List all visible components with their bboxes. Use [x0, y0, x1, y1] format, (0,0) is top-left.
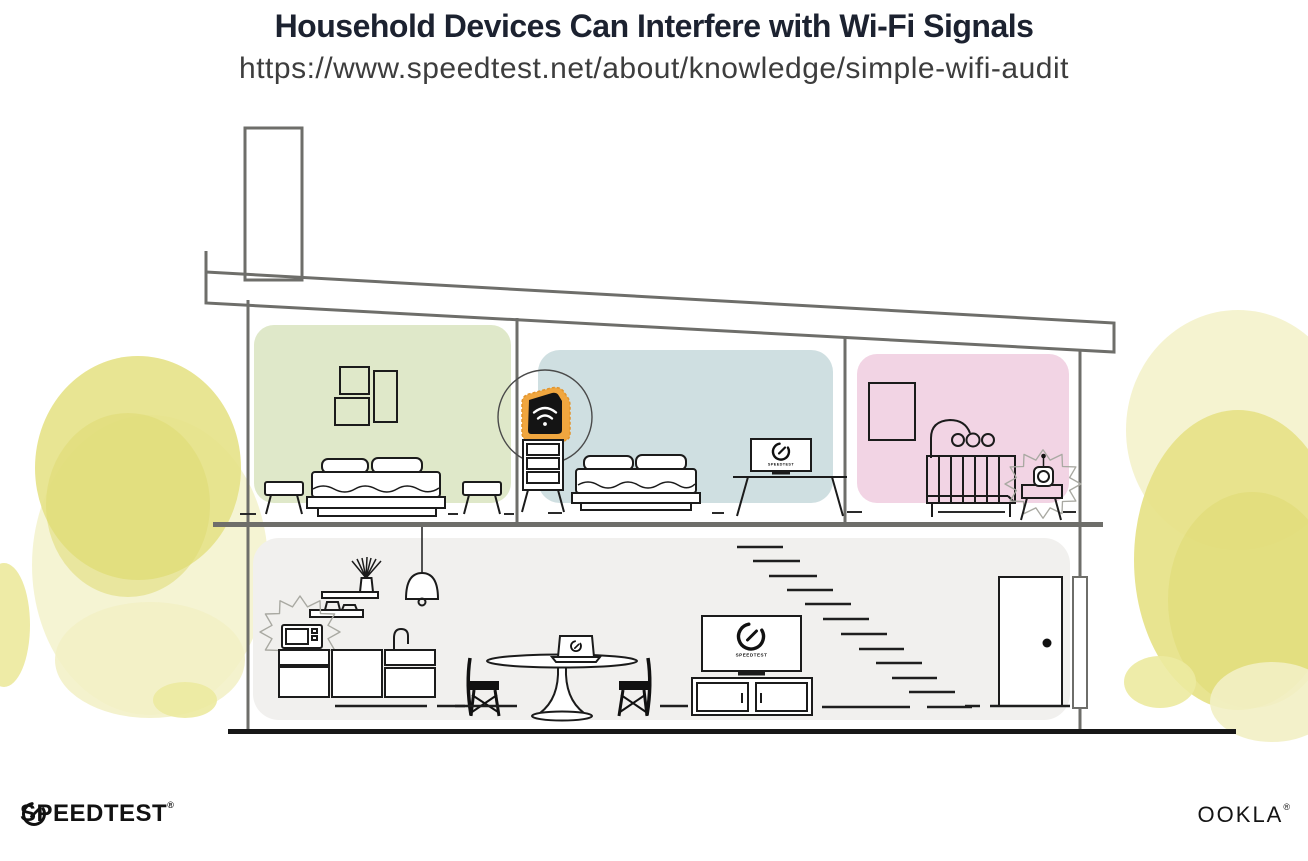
ookla-logo: OOKLA®	[1198, 802, 1292, 828]
microwave	[282, 625, 322, 648]
house-illustration: SPEEDTEST	[0, 0, 1308, 861]
speedtest-gauge-icon	[20, 800, 48, 828]
tv-screen-label: SPEEDTEST	[736, 653, 768, 658]
kitchen-counter	[279, 650, 435, 697]
wifi-router-icon	[522, 388, 570, 442]
bed-second	[572, 455, 700, 510]
ground-line	[228, 729, 1236, 734]
foliage-right	[1124, 310, 1308, 742]
chimney	[245, 128, 302, 280]
speedtest-trademark: ®	[167, 800, 174, 810]
tv: SPEEDTEST	[702, 616, 801, 676]
bedroom-monitor-label: SPEEDTEST	[768, 463, 794, 467]
floor-line	[213, 522, 1103, 527]
speedtest-logo: SPEEDTEST®	[20, 800, 174, 828]
tv-console	[692, 678, 812, 715]
door	[999, 577, 1062, 706]
foliage-left	[0, 356, 268, 718]
laptop	[552, 636, 600, 662]
door-knob	[1043, 639, 1052, 648]
downspout	[1073, 577, 1087, 708]
ookla-trademark: ®	[1283, 802, 1292, 812]
infographic-page: Household Devices Can Interfere with Wi-…	[0, 0, 1308, 861]
ookla-logo-text: OOKLA®	[1198, 802, 1292, 827]
bedroom-monitor: SPEEDTEST	[751, 439, 811, 475]
